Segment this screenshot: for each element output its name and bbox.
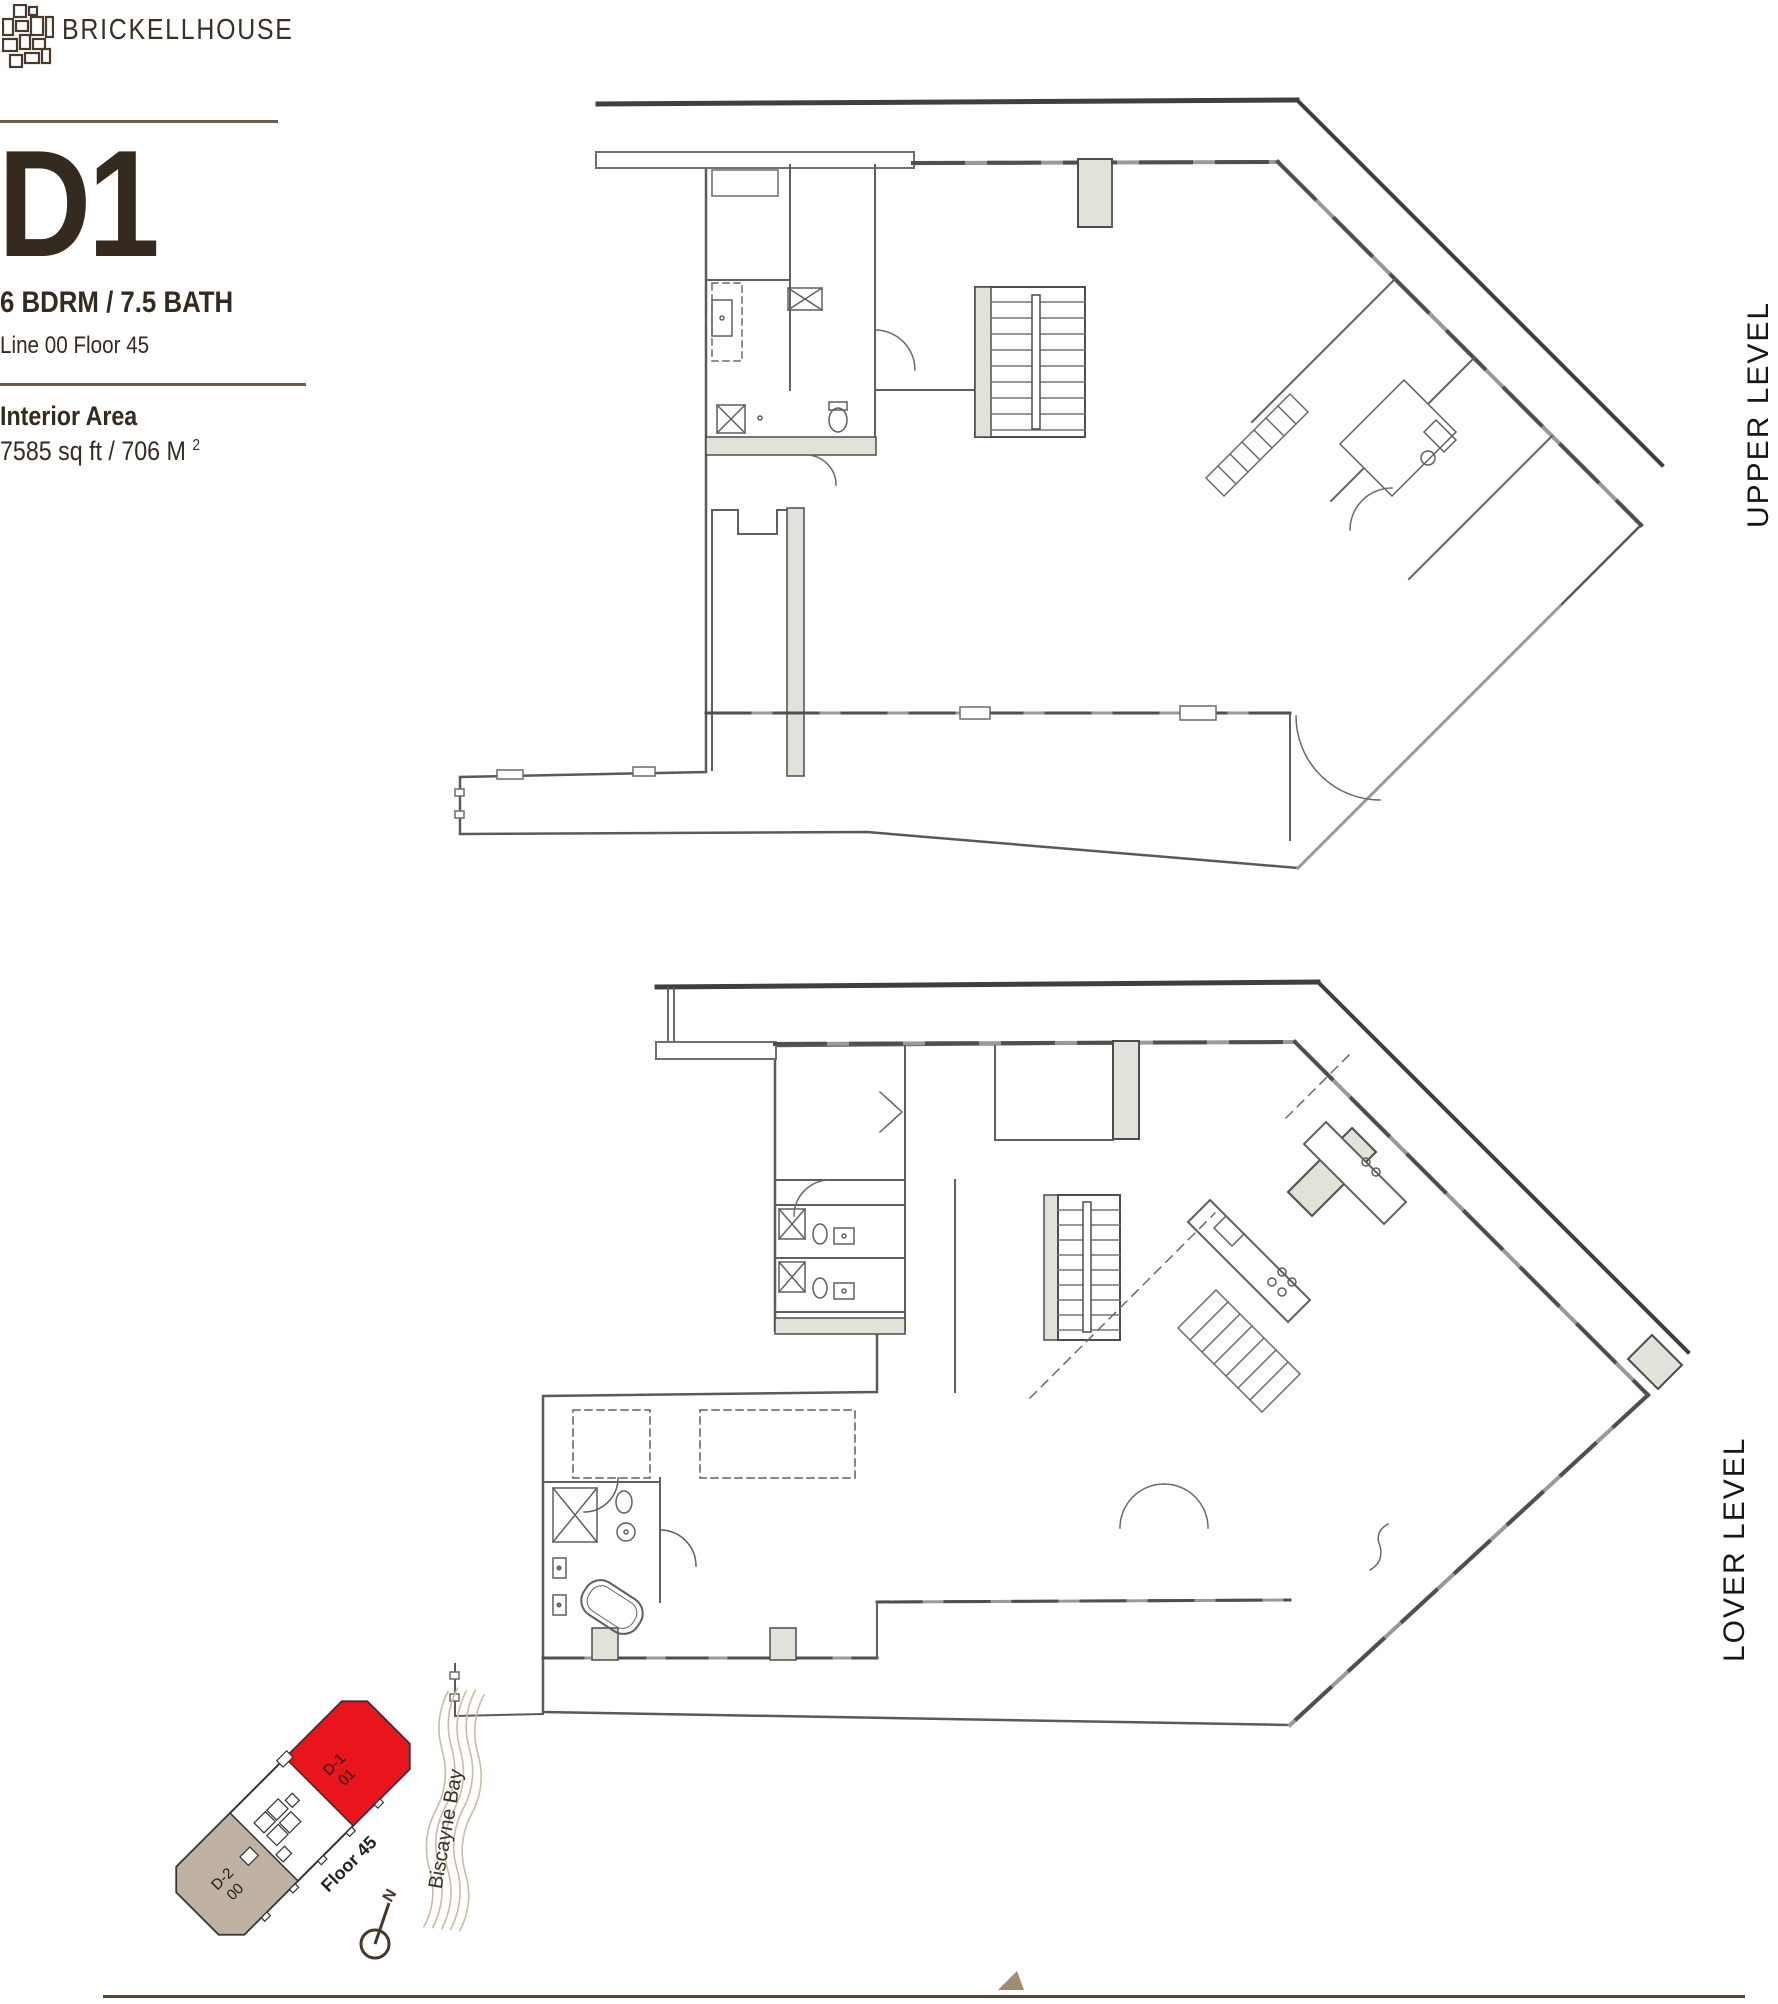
- floorplan-canvas: D-1 01 D-2 00 Floor 45 Biscayne Bay N: [0, 0, 1778, 2004]
- compass-icon: [361, 1903, 389, 1958]
- lower-stair: [1044, 1195, 1120, 1340]
- footer-triangle-icon: [998, 1971, 1024, 1990]
- lower-level-plan: [450, 982, 1688, 1725]
- upper-level-plan: [455, 100, 1662, 868]
- upper-stair: [975, 287, 1085, 437]
- compass-n-label: N: [380, 1886, 401, 1905]
- page-bottom-rule: [103, 1995, 1745, 1998]
- bay-label: Biscayne Bay: [425, 1767, 468, 1890]
- keyplan: D-1 01 D-2 00 Floor 45 Biscayne Bay N: [161, 1686, 491, 1972]
